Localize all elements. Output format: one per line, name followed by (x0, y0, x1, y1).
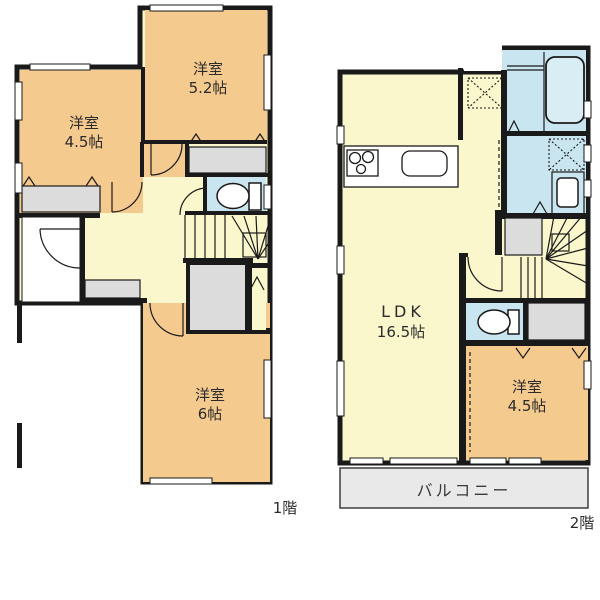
ldk-area: 16.5帖 (377, 323, 425, 341)
wall (143, 140, 267, 144)
window (337, 126, 344, 144)
room-4_5-name: 洋室 (512, 378, 542, 396)
wall (501, 70, 507, 215)
room-5_2-name: 洋室 (193, 60, 223, 78)
wall (185, 173, 268, 177)
wall (185, 211, 268, 215)
toilet-tank-icon (249, 183, 261, 210)
room-4_5-name: 洋室 (69, 114, 99, 132)
window (584, 145, 591, 162)
floor2-label: 2階 (570, 514, 595, 532)
wall (495, 210, 502, 255)
window (584, 101, 591, 118)
wall (461, 340, 588, 346)
window (264, 55, 271, 110)
stove-burner (357, 165, 366, 174)
window (584, 361, 591, 389)
room-6-name: 洋室 (195, 386, 225, 404)
wall (80, 298, 147, 303)
window (337, 361, 344, 416)
room-4_5-area: 4.5帖 (65, 133, 104, 151)
window (15, 163, 22, 193)
window (150, 5, 223, 11)
room-6-area: 6帖 (198, 405, 223, 423)
room-5_2-area: 5.2帖 (189, 79, 228, 97)
sink-icon (402, 151, 447, 176)
floor1-label: 1階 (273, 499, 298, 517)
entrance-hall (22, 217, 80, 302)
storage-room (188, 263, 247, 332)
floor-plan-image: 洋室 5.2帖 洋室 4.5帖 洋室 6帖 1階 (0, 0, 600, 600)
fence-wall (17, 303, 22, 343)
wall (203, 177, 207, 211)
footprint-notch (464, 43, 502, 71)
closet (22, 186, 100, 212)
floor-plan-svg: 洋室 5.2帖 洋室 4.5帖 洋室 6帖 1階 (0, 0, 600, 600)
stove-burner (350, 153, 361, 164)
closet (505, 218, 542, 255)
wall (80, 217, 85, 302)
window (509, 458, 541, 464)
floor1-plan: 洋室 5.2帖 洋室 4.5帖 洋室 6帖 1階 (15, 5, 297, 517)
window (150, 478, 212, 484)
wall (185, 143, 189, 175)
washbasin-icon (557, 178, 578, 207)
closet (528, 303, 585, 340)
wall (140, 142, 144, 177)
window (30, 64, 90, 70)
room-4_5-area: 4.5帖 (508, 397, 547, 415)
storage-nook (252, 303, 266, 330)
toilet-bowl-icon (478, 310, 510, 334)
ldk-name: LDK (381, 302, 425, 321)
fence-wall (17, 423, 22, 468)
window (584, 180, 591, 197)
bathtub-icon (546, 57, 584, 123)
wall (458, 68, 463, 140)
wall (501, 131, 588, 136)
window (264, 360, 271, 418)
window (264, 185, 271, 209)
balcony-label: バルコニー (417, 481, 512, 500)
wall (141, 67, 145, 143)
wall (523, 303, 528, 340)
closet (189, 147, 266, 173)
window (15, 82, 22, 120)
window (470, 458, 506, 464)
wall (459, 253, 466, 461)
entrance-mat (85, 280, 140, 298)
stove-burner (363, 152, 374, 163)
toilet-bowl-icon (217, 184, 249, 209)
window (350, 458, 383, 464)
window (390, 458, 457, 464)
floor2-plan: バルコニー LDK 16.5帖 洋室 4.5帖 2階 (337, 43, 594, 532)
window (337, 246, 344, 274)
